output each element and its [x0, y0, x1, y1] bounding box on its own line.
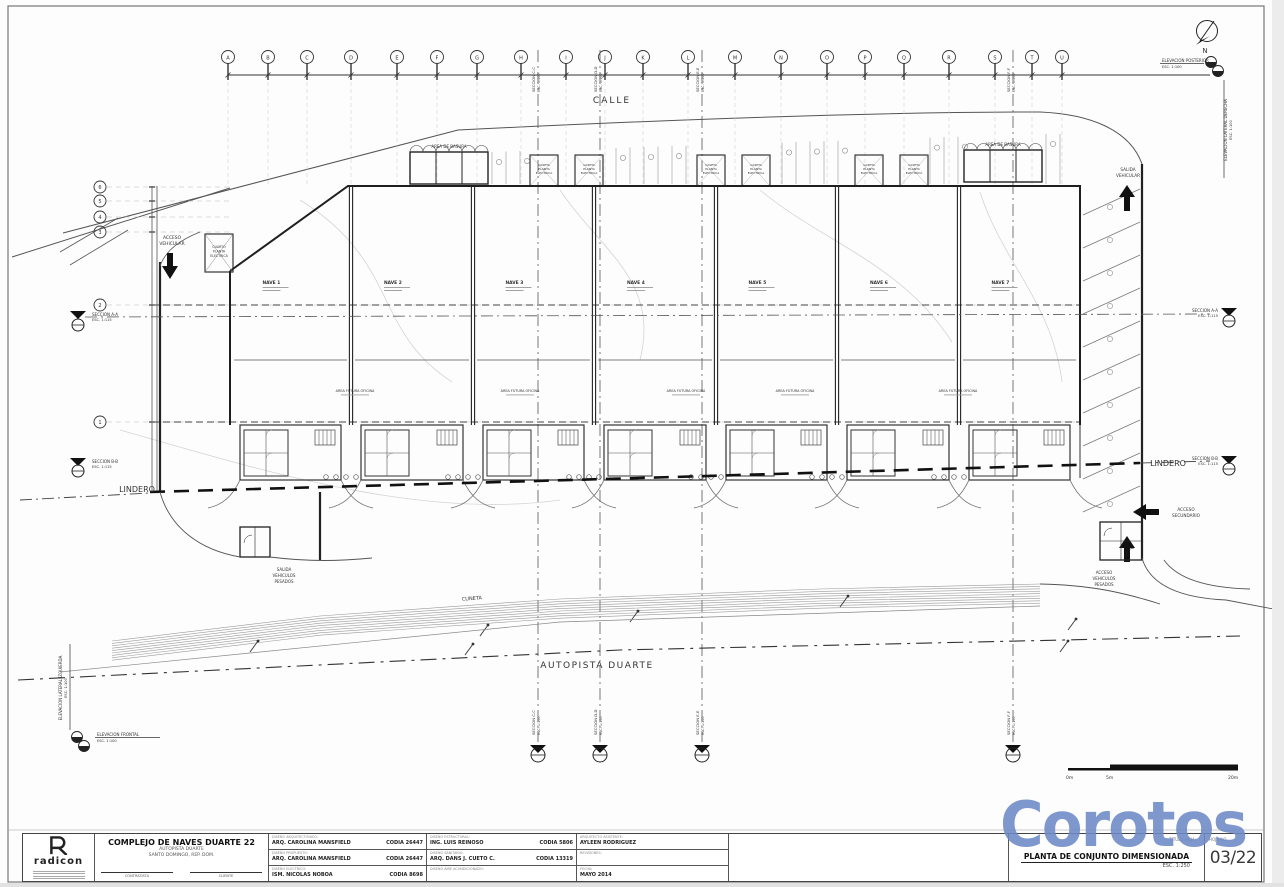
cuneta-label: CUNETA [462, 595, 483, 602]
grid-letter: K [641, 55, 645, 61]
parking-dot [814, 149, 819, 154]
nave-label: NAVE 3 [506, 280, 524, 286]
apron-curve [694, 480, 726, 508]
svg-text:ESC. 1:115: ESC. 1:115 [1198, 314, 1218, 318]
sheet-title-cell: TITULO HOJA: PLANTA DE CONJUNTO DIMENSIO… [1009, 834, 1205, 881]
scale-bar: 0m 5m 20m [1066, 765, 1238, 782]
credit-header: FECHA: [580, 867, 725, 871]
section-aa-line [85, 314, 1210, 317]
credits-column-2: DISEÑO ESTRUCTURAL:ING. LUIS REINOSOCODI… [427, 834, 577, 881]
leader-dot [1067, 640, 1070, 643]
naves-layer: NAVE 1NAVE 2NAVE 3NAVE 4NAVE 5NAVE 6NAVE… [152, 142, 1102, 508]
door-arc [630, 430, 636, 436]
caseta-label: ELECTRICA [703, 171, 720, 175]
page-number-cell: HOJA NO. 03/22 [1205, 834, 1261, 881]
section-label-bottom: ESC. 1:100 [537, 716, 541, 735]
nave-sublabel-line [749, 287, 775, 288]
door-arc [752, 453, 758, 459]
nave-front-block [483, 425, 584, 480]
area-futura-label: AREA FUTURA OFICINA [667, 389, 706, 393]
parking-dot [1107, 435, 1112, 440]
credit-name: MAYO 2014 [580, 872, 725, 878]
bollard [446, 475, 451, 480]
project-title: COMPLEJO DE NAVES DUARTE 22 [95, 838, 268, 847]
parking-dot [1107, 204, 1112, 209]
apron-curve [937, 480, 969, 508]
svg-text:ESC. 1:100: ESC. 1:100 [1162, 65, 1182, 69]
diag-parking-line [1083, 420, 1140, 446]
bollard [567, 475, 572, 480]
acceso-secundario: ACCESO SECUNDARIO [1133, 504, 1201, 520]
section-marker-triangle [694, 745, 710, 753]
credit-codia: CODIA 8698 [390, 872, 423, 878]
credit-cell: DISEÑO ELECTRICO:ISM. NICOLAS NOBOACODIA… [269, 866, 426, 881]
leader-dot [472, 643, 475, 646]
credits-column-1: DISEÑO ARQUITECTONICO:ARQ. CAROLINA MANS… [269, 834, 427, 881]
bollard [942, 475, 947, 480]
credit-header: DISEÑO ESTRUCTURAL: [430, 835, 573, 839]
door-arc [509, 453, 515, 459]
acceso-vehicular: ACCESO VEHICULAR [159, 235, 184, 279]
bollard [719, 475, 724, 480]
section-label-bottom: ESC. 1:100 [599, 716, 603, 735]
area-futura-label: AREA FUTURA OFICINA [336, 389, 375, 393]
blank-cell [729, 834, 1009, 881]
grid-letter: J [603, 55, 605, 61]
section-label-bottom: SECCION C-C [531, 710, 536, 735]
entrance-curves [160, 492, 1284, 611]
stairs [437, 430, 457, 445]
svg-text:SECCION B-B: SECCION B-B [1192, 456, 1218, 461]
grid-letter: P [863, 55, 866, 61]
site-plan-drawing: CALLE ABCDEFGHIJKLMNOPQRSTU654321 SECCIO… [0, 0, 1284, 887]
svg-text:PESADOS: PESADOS [1094, 582, 1114, 587]
stairs [923, 430, 943, 445]
sheet-title-header: TITULO HOJA: [1169, 837, 1196, 842]
right-road: SALIDA VEHICULAR [1080, 164, 1142, 562]
parking-dot [1107, 402, 1112, 407]
section-aa-right: SECCION A-A ESC. 1:115 [1192, 308, 1237, 327]
scan-edge-right [1272, 0, 1284, 887]
grid-letter: D [349, 55, 353, 61]
door-arc [509, 430, 515, 436]
grid-letter: R [947, 55, 951, 61]
left-road [60, 186, 320, 560]
apron-curve [1070, 480, 1102, 508]
section-label-top: ESC. 1:100 [599, 73, 603, 92]
credit-codia: CODIA 26447 [386, 856, 423, 862]
section-aa-left: SECCION A-A ESC. 1:115 [70, 311, 118, 331]
svg-text:N: N [1202, 47, 1207, 55]
nave-front-block [240, 425, 341, 480]
area-futura-label: AREA FUTURA OFICINA [776, 389, 815, 393]
nave-label: NAVE 1 [263, 280, 281, 286]
svg-text:LINDERO: LINDERO [119, 485, 155, 494]
row-number: 4 [98, 215, 101, 221]
parking-dot [524, 158, 529, 163]
diag-parking-line [1083, 288, 1140, 314]
svg-text:PESADOS: PESADOS [274, 579, 294, 584]
section-label-top: SECCION E-E [695, 67, 700, 92]
bollard [577, 475, 582, 480]
grid-letter: G [475, 55, 479, 61]
svg-text:20m: 20m [1228, 775, 1238, 781]
logo-fineprint [33, 869, 85, 881]
section-label-bottom: ESC. 1:100 [1012, 716, 1016, 735]
svg-text:VEHICULAR: VEHICULAR [159, 241, 184, 247]
area-futura-label: AREA FUTURA OFICINA [501, 389, 540, 393]
up-arrow-icon [1119, 536, 1135, 562]
parking-dot [1107, 237, 1112, 242]
parking-dot [496, 159, 501, 164]
leader-dot [847, 595, 850, 598]
nave-label: NAVE 4 [627, 280, 645, 286]
guard-caseta-right [1100, 522, 1142, 560]
grid-letter: Q [902, 55, 906, 61]
nave-sublabel-line [506, 290, 524, 291]
sections-layer: SECCION C-CESC. 1:100SECCION C-CESC. 1:1… [530, 50, 1021, 762]
stairs [801, 430, 821, 445]
credit-header: DISEÑO ELECTRICO: [272, 867, 423, 871]
apron-curve [827, 480, 859, 508]
nave-label: NAVE 2 [384, 280, 402, 286]
area-futura-line [341, 395, 369, 396]
svg-text:ELEVACION LATERAL IZQUIERDA: ELEVACION LATERAL IZQUIERDA [58, 655, 63, 720]
svg-text:SALIDA: SALIDA [277, 567, 292, 572]
stairs [1044, 430, 1064, 445]
credit-cell: DISEÑO PROPUESTO:ARQ. CAROLINA MANSFIELD… [269, 850, 426, 866]
nave-sublabel-line [263, 287, 289, 288]
svg-text:ACCESO: ACCESO [163, 235, 182, 241]
grid-letter: F [436, 55, 439, 61]
credit-cell: ARQUITECTO ASISTENTE:AYLEEN RODRIGUEZ [577, 834, 728, 850]
svg-text:PLANTA: PLANTA [213, 250, 226, 254]
credit-codia: CODIA 5806 [540, 840, 573, 846]
leader-dot [1075, 618, 1078, 621]
door-arc [995, 453, 1001, 459]
credit-cell: DISEÑO ARQUITECTONICO:ARQ. CAROLINA MANS… [269, 834, 426, 850]
parking-dot [1107, 501, 1112, 506]
nave-front-block [604, 425, 706, 480]
nave-sublabel-line [627, 290, 645, 291]
nave-sublabel-line [749, 290, 767, 291]
svg-text:ACCESO: ACCESO [1177, 507, 1195, 512]
section-label-bottom: ESC. 1:100 [701, 716, 705, 735]
area-futura-line [672, 395, 700, 396]
row-number: 3 [98, 230, 101, 236]
calle-road-edges [12, 112, 1142, 257]
elevacion-lateral-izquierda: ELEVACION LATERAL IZQUIERDA ESC. 1:100 [58, 644, 70, 730]
parking-dot [1107, 468, 1112, 473]
area-futura-line [944, 395, 972, 396]
svg-text:ESC. 1:115: ESC. 1:115 [92, 465, 112, 469]
credit-header: DISEÑO ARQUITECTONICO: [272, 835, 423, 839]
stairs [315, 430, 335, 445]
bollard [344, 475, 349, 480]
nave-front-block [361, 425, 463, 480]
svg-text:ESC. 1:115: ESC. 1:115 [92, 318, 112, 322]
section-label-top: ESC. 1:100 [701, 73, 705, 92]
project-cell: COMPLEJO DE NAVES DUARTE 22 AUTOPISTA DU… [95, 834, 269, 881]
credit-header: DISEÑO AIRE ACONDICIONADO: [430, 867, 573, 871]
parking-dot [1107, 303, 1112, 308]
leader-flag [465, 644, 473, 655]
terrain-contours [120, 190, 1062, 505]
section-label-bottom: SECCION E-E [695, 710, 700, 735]
grid-letter: A [226, 55, 230, 61]
radicon-logo-icon [48, 836, 70, 855]
section-bb-right: SECCION B-B ESC. 1:115 [1192, 456, 1237, 475]
bollard [334, 475, 339, 480]
row-number: 1 [98, 420, 101, 426]
nave-sublabel-line [384, 290, 402, 291]
signature-cliente: CLIENTE [190, 874, 262, 878]
caseta-label: ELECTRICA [748, 171, 765, 175]
grid-letter: M [733, 55, 737, 61]
parking-dot [676, 153, 681, 158]
grid-letter: U [1060, 55, 1064, 61]
svg-text:LINDERO: LINDERO [1150, 459, 1186, 468]
parking-dot [620, 155, 625, 160]
section-marker-triangle [592, 745, 608, 753]
parking-dot [934, 145, 939, 150]
credit-name: AYLEEN RODRIGUEZ [580, 840, 725, 846]
nave-front-block [969, 425, 1070, 480]
signature-contratista: CONTRATISTA [101, 874, 173, 878]
sheet-title: PLANTA DE CONJUNTO DIMENSIONADA [1021, 852, 1192, 863]
credit-cell: DISEÑO SANITARIO:ARQ. DANS J. CUETO C.CO… [427, 850, 576, 866]
bollard [962, 475, 967, 480]
credit-cell: REVISIONES: [577, 850, 728, 866]
nave-sublabel-line [384, 287, 410, 288]
elevacion-lateral-derecha: ELEVACION LATERAL DERECHA ESC. 1:100 [1223, 80, 1233, 178]
bollard [324, 475, 329, 480]
grid-letter: S [993, 55, 996, 61]
section-marker-triangle [530, 745, 546, 753]
credits-column-3: ARQUITECTO ASISTENTE:AYLEEN RODRIGUEZREV… [577, 834, 729, 881]
svg-text:SECCION A-A: SECCION A-A [92, 312, 118, 317]
grid-letter: O [825, 55, 829, 61]
row-number: 6 [98, 185, 101, 191]
guard-caseta-left [240, 527, 270, 557]
leader-flag [1060, 641, 1068, 652]
bollard [810, 475, 815, 480]
svg-text:ESC. 1:115: ESC. 1:115 [1198, 462, 1218, 466]
section-bb-left: SECCION B-B ESC. 1:115 [70, 458, 118, 477]
svg-text:VEHICULOS: VEHICULOS [273, 573, 296, 578]
logo-word: radicon [34, 856, 83, 867]
project-line3: SANTO DOMINGO, REP. DOM. [95, 853, 268, 859]
door-arc [752, 430, 758, 436]
grid-letter: C [305, 55, 309, 61]
apron-curve [208, 480, 240, 508]
grid-letter: B [266, 55, 270, 61]
parking-dot [1107, 369, 1112, 374]
diag-parking-line [1083, 222, 1140, 248]
apron-curve [341, 480, 373, 508]
door-arc [873, 430, 879, 436]
leader-dot [487, 624, 490, 627]
parking-dot [1107, 336, 1112, 341]
credit-header: ARQUITECTO ASISTENTE: [580, 835, 725, 839]
scan-edge-bottom [0, 883, 1284, 887]
credit-header: DISEÑO PROPUESTO: [272, 851, 423, 855]
cuneta-line [112, 591, 1040, 648]
svg-text:ESC. 1:100: ESC. 1:100 [97, 739, 117, 743]
diag-parking-line [1083, 321, 1140, 347]
autopista: AUTOPISTA DUARTE [18, 606, 1240, 680]
svg-text:0m: 0m [1066, 775, 1073, 781]
svg-text:5m: 5m [1106, 775, 1113, 781]
grid-layer: ABCDEFGHIJKLMNOPQRSTU654321 [94, 51, 1210, 429]
bollard [820, 475, 825, 480]
nave-sublabel-line [263, 290, 281, 291]
stairs [680, 430, 700, 445]
leader-flag [250, 641, 258, 652]
signature-row: CONTRATISTA CLIENTE [101, 872, 262, 878]
parking-dot [786, 150, 791, 155]
credit-header: REVISIONES: [580, 851, 725, 855]
svg-text:VEHICULOS: VEHICULOS [1093, 576, 1116, 581]
grid-letter: L [687, 55, 690, 61]
apron-curve [815, 480, 847, 508]
bollard [466, 475, 471, 480]
bollard [354, 475, 359, 480]
svg-text:SECCION B-B: SECCION B-B [92, 459, 118, 464]
parking-dot [842, 148, 847, 153]
bollard [456, 475, 461, 480]
row-number: 2 [98, 303, 101, 309]
sheet: CALLE ABCDEFGHIJKLMNOPQRSTU654321 SECCIO… [0, 0, 1284, 887]
apron-curve [572, 480, 604, 508]
area-futura-label: AREA FUTURA OFICINA [939, 389, 978, 393]
door-arc [266, 453, 272, 459]
basura-box [964, 150, 1042, 182]
diag-parking-line [1083, 354, 1140, 380]
credit-codia: CODIA 26447 [386, 840, 423, 846]
nave-label: NAVE 5 [749, 280, 767, 286]
bollard [932, 475, 937, 480]
diag-parking-line [1083, 255, 1140, 281]
grid-letter: H [519, 55, 523, 61]
svg-text:AUTOPISTA DUARTE: AUTOPISTA DUARTE [540, 661, 653, 671]
svg-text:ELEVACION FRONTAL: ELEVACION FRONTAL [97, 732, 140, 737]
title-block: radicon COMPLEJO DE NAVES DUARTE 22 AUTO… [22, 833, 1262, 882]
salida-pesados: SALIDA VEHICULOS PESADOS [273, 567, 296, 584]
stairs [558, 430, 578, 445]
door-arc [873, 453, 879, 459]
grid-letter: N [779, 55, 783, 61]
leader-flag [1068, 619, 1076, 630]
section-label-top: SECCION F-F [1006, 68, 1011, 92]
nave-sublabel-line [992, 287, 1018, 288]
svg-text:SECCION A-A: SECCION A-A [1192, 308, 1218, 313]
nave-label: NAVE 7 [992, 280, 1010, 286]
acceso-pesados: ACCESO VEHICULOS PESADOS [1093, 570, 1116, 587]
up-arrow-icon [1119, 185, 1135, 211]
area-futura-line [506, 395, 534, 396]
logo-cell: radicon [23, 834, 95, 881]
caseta-label: ELECTRICA [581, 171, 598, 175]
door-arc [387, 430, 393, 436]
parking-dot [1050, 141, 1055, 146]
parking-dot [1107, 270, 1112, 275]
section-label-bottom: SECCION F-F [1006, 711, 1011, 735]
sheet-frame [8, 6, 1264, 882]
credit-codia: CODIA 13319 [536, 856, 573, 862]
section-label-top: SECCION D-D [593, 66, 598, 92]
bollard [952, 475, 957, 480]
parking-dot [648, 154, 653, 159]
credit-cell: DISEÑO AIRE ACONDICIONADO: [427, 866, 576, 881]
svg-text:VEHICULAR: VEHICULAR [1116, 173, 1140, 178]
leader-flag [480, 625, 488, 636]
apron-curve [329, 480, 361, 508]
section-label-top: SECCION C-C [531, 67, 536, 92]
svg-text:ESC. 1:100: ESC. 1:100 [1229, 119, 1233, 139]
diag-parking-line [1083, 387, 1140, 413]
area-futura-line [781, 395, 809, 396]
credit-cell: DISEÑO ESTRUCTURAL:ING. LUIS REINOSOCODI… [427, 834, 576, 850]
door-arc [995, 430, 1001, 436]
bollard [597, 475, 602, 480]
nave-sublabel-line [627, 287, 653, 288]
bollard [840, 475, 845, 480]
sheet-scale: ESC. 1:250 [1009, 863, 1204, 869]
nave-label: NAVE 6 [870, 280, 888, 286]
section-marker-triangle [1005, 745, 1021, 753]
elevacion-frontal: ELEVACION FRONTAL ESC. 1:100 [72, 732, 161, 752]
nave-sublabel-line [506, 287, 532, 288]
nave-sublabel-line [992, 290, 1010, 291]
parking-layer [492, 134, 1140, 512]
svg-text:CUARTO: CUARTO [212, 245, 226, 249]
diag-parking-line [1083, 486, 1140, 512]
bollard [476, 475, 481, 480]
grid-letter: E [395, 55, 398, 61]
caseta-label: ELECTRICA [906, 171, 923, 175]
left-arrow-icon [1133, 504, 1159, 520]
elevacion-posterior: ELEVACION POSTERIOR ESC. 1:100 [1160, 57, 1224, 77]
svg-text:ELECTRICA: ELECTRICA [210, 254, 228, 258]
section-label-bottom: SECCION D-D [593, 709, 598, 735]
basura-box [410, 152, 488, 184]
leader-dot [257, 640, 260, 643]
svg-text:SALIDA: SALIDA [1120, 167, 1135, 172]
area-basura-label: AREA DE BASURA [431, 144, 466, 149]
cuneta-line [112, 594, 1040, 651]
row-number: 5 [98, 199, 101, 205]
credits-section: DISEÑO ARQUITECTONICO:ARQ. CAROLINA MANS… [269, 834, 729, 881]
page-number-header: HOJA NO. [1209, 837, 1228, 842]
bollard [830, 475, 835, 480]
section-label-top: ESC. 1:100 [1012, 73, 1016, 92]
nave-sublabel-line [870, 287, 896, 288]
page-number: 03/22 [1205, 848, 1261, 868]
north-arrow-icon: N [1196, 21, 1218, 56]
caseta-label: ELECTRICA [536, 171, 553, 175]
apron-curve [706, 480, 738, 508]
leader-flag [630, 611, 638, 622]
leader-dot [637, 610, 640, 613]
svg-text:ESC. 1:100: ESC. 1:100 [64, 677, 68, 697]
door-arc [266, 430, 272, 436]
svg-text:ELEVACION POSTERIOR: ELEVACION POSTERIOR [1162, 58, 1209, 63]
grid-letter: I [565, 55, 566, 61]
nave-front-block [847, 425, 949, 480]
credit-cell: FECHA:MAYO 2014 [577, 866, 728, 881]
caseta-label: ELECTRICA [861, 171, 878, 175]
